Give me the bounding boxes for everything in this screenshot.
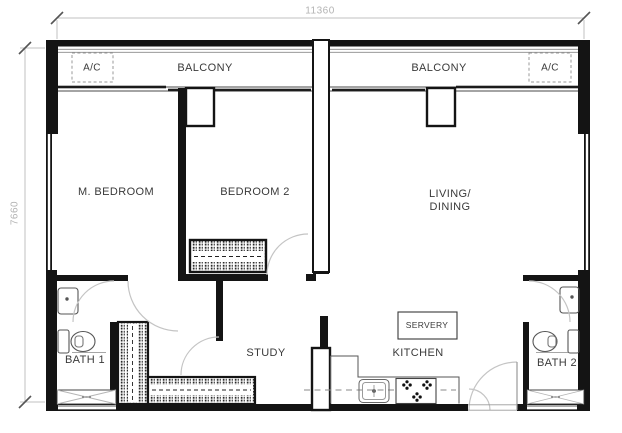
balcony-label-left: BALCONY [177, 62, 232, 74]
bath1-label: BATH 1 [65, 354, 105, 366]
stove-icon [396, 379, 436, 404]
entry-threshold [468, 405, 517, 410]
bath2-label: BATH 2 [537, 357, 577, 369]
dimension-left-label: 7660 [10, 201, 21, 225]
ac-label-left: A/C [83, 63, 101, 74]
dimension-top-label: 11360 [305, 6, 335, 17]
door-arc-bath1 [73, 281, 114, 322]
ac-label-right: A/C [541, 63, 559, 74]
servery-label: SERVERY [406, 320, 448, 330]
sink-icon-bath2 [560, 287, 579, 313]
floorplan: 11360 7660 A/C BALCONY BALCONY A/C M. BE… [0, 0, 622, 433]
m-bedroom-label: M. BEDROOM [78, 186, 154, 198]
door-arc-study [181, 337, 219, 375]
living-dining-label: LIVING/ DINING [429, 188, 471, 214]
bath2-fixtures [533, 287, 579, 353]
toilet-icon-bath2 [533, 330, 579, 353]
wardrobe-hall-horizontal [148, 377, 255, 404]
center-party-wall [313, 40, 329, 272]
shower-bath2 [527, 390, 584, 404]
column-living [427, 88, 455, 126]
column-bedroom2 [186, 88, 214, 126]
door-arc-entry-main [469, 362, 517, 410]
bath1-fixtures [58, 288, 106, 353]
living-dining-line2: DINING [429, 201, 471, 214]
shower-bath1 [57, 390, 116, 404]
balcony-label-right: BALCONY [411, 62, 466, 74]
kitchen-sink-icon [359, 380, 389, 403]
living-dining-line1: LIVING/ [429, 188, 471, 201]
door-arc-bedroom2 [267, 234, 308, 275]
wardrobe-bedroom2 [190, 240, 266, 272]
kitchen-label: KITCHEN [392, 347, 443, 359]
column-kitchen [312, 348, 330, 410]
wardrobe-hall-vertical [118, 322, 148, 404]
kitchen-counter [331, 356, 460, 404]
bedroom2-label: BEDROOM 2 [220, 186, 290, 198]
toilet-icon-bath1 [58, 330, 95, 353]
study-label: STUDY [246, 347, 285, 359]
dimension-line-left [19, 42, 45, 408]
